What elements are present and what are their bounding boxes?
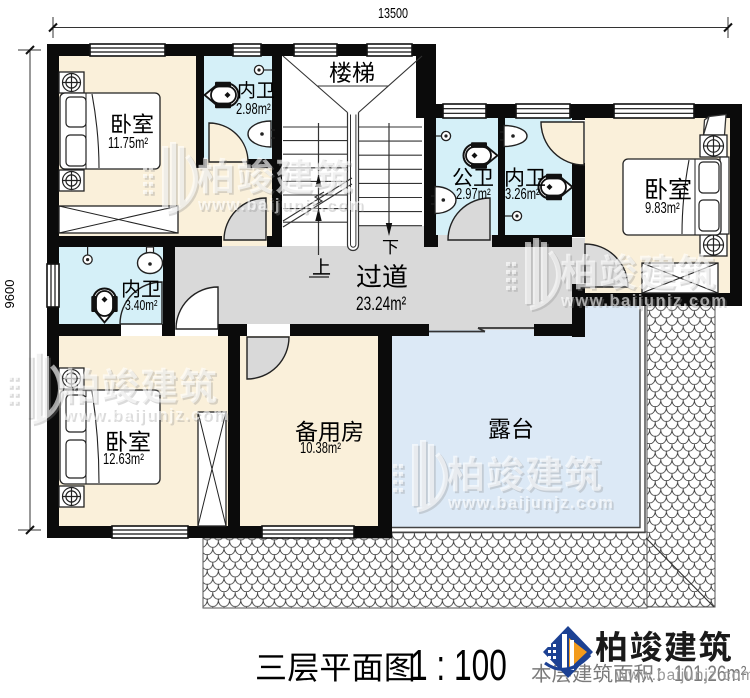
svg-text:www.baijunjz.com: www.baijunjz.com	[62, 406, 229, 424]
svg-text:9.83m²: 9.83m²	[645, 199, 680, 216]
svg-text:1 : 100: 1 : 100	[410, 641, 507, 690]
svg-text:2.97m²: 2.97m²	[456, 185, 491, 202]
svg-text:12.63m²: 12.63m²	[103, 450, 144, 467]
svg-text:13500: 13500	[378, 4, 408, 21]
svg-text:10.38m²: 10.38m²	[300, 439, 341, 456]
svg-text:www.baijunjz.com: www.baijunjz.com	[447, 494, 614, 512]
svg-text:www.baijunjz.com: www.baijunjz.com	[615, 667, 750, 684]
svg-text:www.baijunjz.com: www.baijunjz.com	[560, 292, 727, 310]
svg-text:23.24m²: 23.24m²	[356, 293, 407, 315]
svg-text:www.baijunjz.com: www.baijunjz.com	[197, 196, 364, 214]
svg-text:9600: 9600	[2, 280, 17, 309]
svg-text:3.40m²: 3.40m²	[125, 297, 157, 313]
svg-text:11.75m²: 11.75m²	[108, 134, 149, 151]
svg-text:3.26m²: 3.26m²	[505, 185, 540, 202]
svg-text:2.98m²: 2.98m²	[236, 100, 271, 117]
